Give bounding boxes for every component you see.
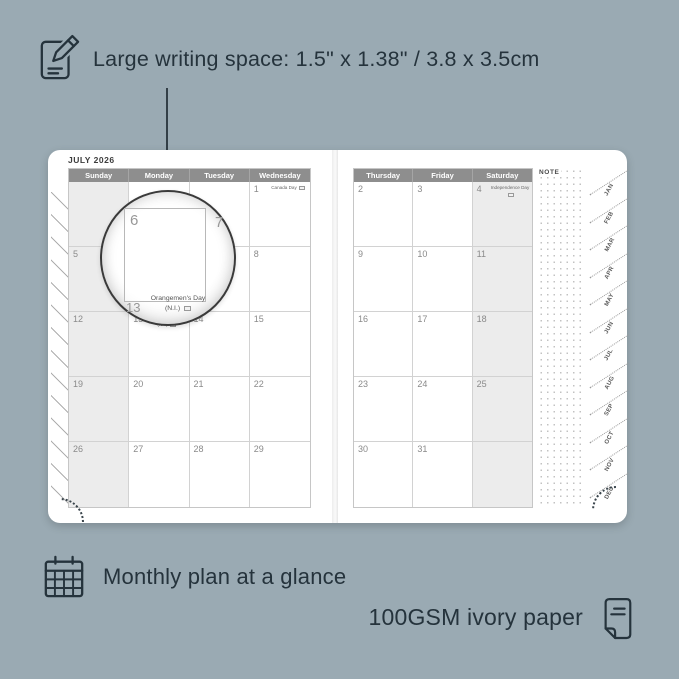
day-number: 9 bbox=[358, 249, 363, 259]
day-number: 28 bbox=[194, 444, 204, 454]
holiday-line-1: Orangemen's Day bbox=[142, 294, 214, 304]
magnified-day-number: 6 bbox=[130, 212, 138, 229]
day-number: 11 bbox=[477, 249, 486, 259]
planner-product-image: Large writing space: 1.5" x 1.38" / 3.8 … bbox=[0, 0, 679, 679]
calendar-grid-icon bbox=[42, 554, 86, 600]
day-number: 2 bbox=[358, 184, 363, 194]
day-cell: 23 bbox=[354, 377, 413, 442]
flag-icon bbox=[299, 186, 305, 190]
day-number: 20 bbox=[133, 379, 143, 389]
day-number: 3 bbox=[417, 184, 422, 194]
weekday-header: Monday bbox=[129, 169, 189, 182]
feature-writing-space-text: Large writing space: 1.5" x 1.38" / 3.8 … bbox=[93, 47, 540, 72]
magnified-adjacent-day: 7 bbox=[215, 214, 223, 231]
paper-sheet-icon bbox=[599, 596, 635, 643]
day-cell: 15 bbox=[250, 312, 310, 377]
day-number: 15 bbox=[254, 314, 264, 324]
day-number: 26 bbox=[73, 444, 83, 454]
day-cell: 26 bbox=[69, 442, 129, 507]
day-number: 18 bbox=[477, 314, 487, 324]
month-tab-label: JAN bbox=[604, 183, 615, 197]
month-tab-label: MAY bbox=[604, 293, 616, 308]
note-label: NOTE bbox=[539, 169, 561, 176]
day-cell: 19 bbox=[69, 377, 129, 442]
feature-monthly-plan-text: Monthly plan at a glance bbox=[103, 564, 346, 590]
day-number: 8 bbox=[254, 249, 259, 259]
magnifier-circle: 6 7 13 Orangemen's Day (N.I.) bbox=[100, 190, 236, 326]
holiday-label: Canada Day bbox=[267, 185, 309, 192]
month-tab-label: APR bbox=[604, 265, 616, 280]
page-spine bbox=[332, 150, 338, 523]
day-number: 29 bbox=[254, 444, 264, 454]
day-cell: 21 bbox=[190, 377, 250, 442]
day-cell: 25 bbox=[473, 377, 532, 442]
day-cell: 8 bbox=[250, 247, 310, 312]
day-number: 25 bbox=[477, 379, 487, 389]
day-number: 10 bbox=[417, 249, 427, 259]
edit-note-icon bbox=[38, 34, 80, 84]
holiday-line-2: (N.I.) bbox=[165, 305, 180, 312]
day-cell: 28 bbox=[190, 442, 250, 507]
day-number: 23 bbox=[358, 379, 368, 389]
month-title: JULY 2026 bbox=[68, 155, 115, 165]
day-cell: 18 bbox=[473, 312, 532, 377]
weekday-header: Saturday bbox=[473, 169, 532, 182]
month-tab-label: JUN bbox=[604, 320, 615, 334]
weekday-header: Sunday bbox=[69, 169, 129, 182]
day-cell: 31 bbox=[413, 442, 472, 507]
day-number: 24 bbox=[417, 379, 427, 389]
feature-writing-space: Large writing space: 1.5" x 1.38" / 3.8 … bbox=[38, 34, 540, 84]
holiday-label: Independence Day bbox=[489, 185, 531, 199]
month-tab-label: AUG bbox=[604, 375, 616, 390]
day-number: 16 bbox=[358, 314, 368, 324]
flag-icon bbox=[508, 193, 514, 197]
month-tab-label: OCT bbox=[604, 430, 616, 445]
day-cell: 30 bbox=[354, 442, 413, 507]
note-column: NOTE bbox=[538, 168, 586, 506]
day-cell: 24 bbox=[413, 377, 472, 442]
day-number: 12 bbox=[73, 314, 83, 324]
flag-icon bbox=[184, 306, 191, 311]
day-cell: 9 bbox=[354, 247, 413, 312]
day-number: 19 bbox=[73, 379, 83, 389]
day-number: 22 bbox=[254, 379, 264, 389]
day-cell: 10 bbox=[413, 247, 472, 312]
day-cell bbox=[473, 442, 532, 507]
day-number: 1 bbox=[254, 184, 259, 194]
calendar-right-page: ThursdayFridaySaturday234Independence Da… bbox=[353, 168, 533, 508]
weekday-header: Tuesday bbox=[190, 169, 250, 182]
day-number: 17 bbox=[417, 314, 427, 324]
day-cell: 2 bbox=[354, 182, 413, 247]
day-cell: 16 bbox=[354, 312, 413, 377]
day-cell: 22 bbox=[250, 377, 310, 442]
magnified-bottom-day: 13 bbox=[126, 300, 140, 315]
month-tab-label: MAR bbox=[604, 237, 616, 253]
feature-paper-text: 100GSM ivory paper bbox=[368, 604, 583, 631]
day-cell: 17 bbox=[413, 312, 472, 377]
day-number: 27 bbox=[133, 444, 143, 454]
month-tab-label: JUL bbox=[604, 348, 615, 362]
day-cell: 3 bbox=[413, 182, 472, 247]
day-cell: 27 bbox=[129, 442, 189, 507]
day-number: 5 bbox=[73, 249, 78, 259]
weekday-header: Thursday bbox=[354, 169, 413, 182]
weekday-header: Friday bbox=[413, 169, 472, 182]
day-cell: 12 bbox=[69, 312, 129, 377]
month-tab-label: FEB bbox=[604, 210, 615, 224]
day-cell: 14 bbox=[190, 312, 250, 377]
day-cell: 20 bbox=[129, 377, 189, 442]
day-number: 31 bbox=[417, 444, 427, 454]
day-cell: 11 bbox=[473, 247, 532, 312]
feature-monthly-plan: Monthly plan at a glance bbox=[42, 554, 346, 600]
day-number: 21 bbox=[194, 379, 204, 389]
weekday-header: Wednesday bbox=[250, 169, 310, 182]
day-number: 4 bbox=[477, 184, 482, 194]
day-cell: 29 bbox=[250, 442, 310, 507]
month-tab-label: SEP bbox=[604, 403, 615, 417]
day-number: 30 bbox=[358, 444, 368, 454]
magnified-holiday-label: Orangemen's Day (N.I.) bbox=[142, 294, 214, 314]
day-cell: 4Independence Day bbox=[473, 182, 532, 247]
month-tab-label: NOV bbox=[604, 457, 616, 472]
month-tab-strip: JANFEBMARAPRMAYJUNJULAUGSEPOCTNOVDEC bbox=[589, 178, 627, 508]
day-cell: 1Canada Day bbox=[250, 182, 310, 247]
